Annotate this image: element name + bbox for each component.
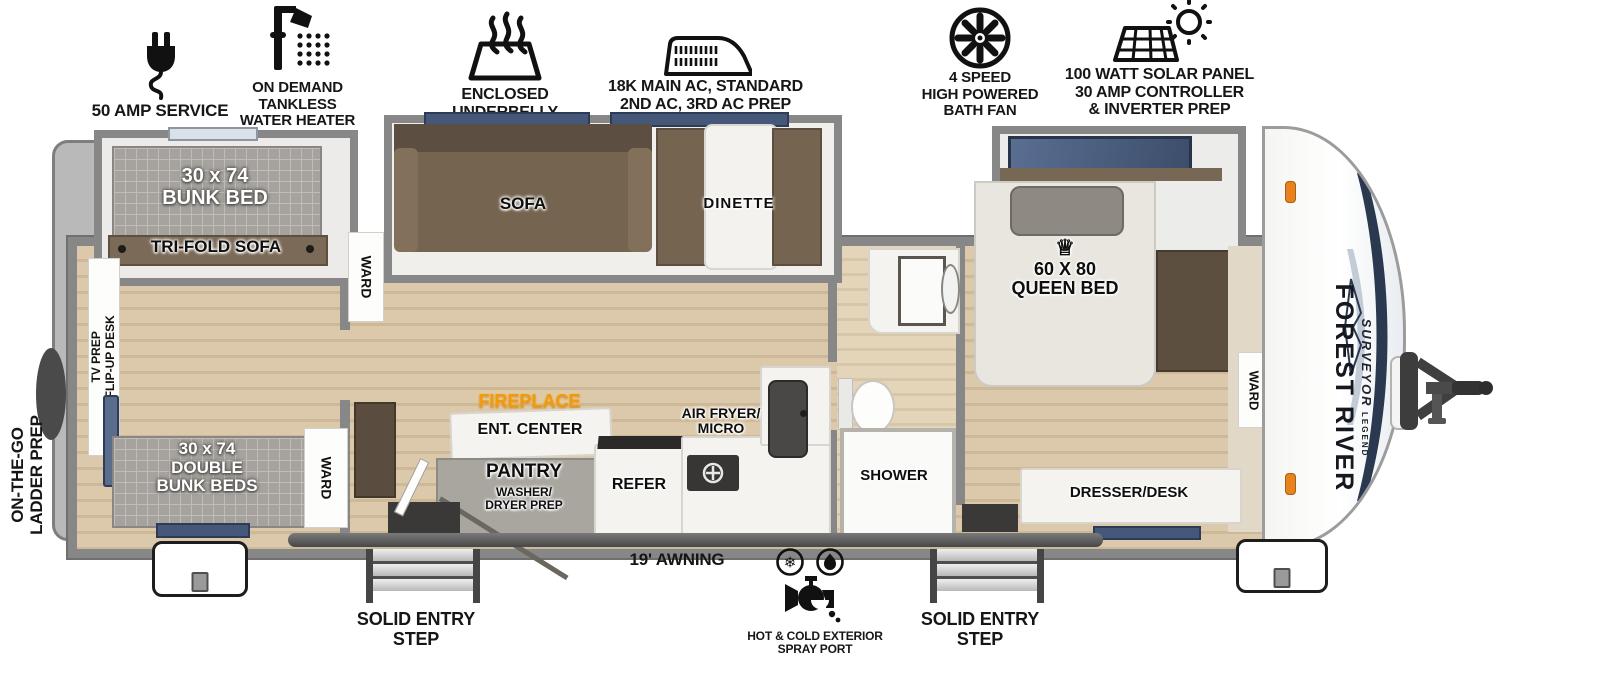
bunkroom-bottom-window bbox=[156, 523, 250, 538]
sofa-armrest-left bbox=[394, 148, 418, 252]
tri-fold-sofa-label: TRI-FOLD SOFA bbox=[133, 238, 299, 256]
step-rung bbox=[373, 579, 473, 591]
feature-water-heater-label: ON DEMAND TANKLESS WATER HEATER bbox=[230, 80, 365, 130]
feature-bath-fan: 4 SPEED HIGH POWERED BATH FAN bbox=[920, 6, 1040, 120]
feature-bath-fan-label: 4 SPEED HIGH POWERED BATH FAN bbox=[920, 70, 1040, 120]
ac-unit-icon bbox=[660, 34, 752, 78]
fan-icon bbox=[948, 6, 1012, 70]
crown-icon: ♕ bbox=[1035, 236, 1095, 259]
entry-step-left bbox=[366, 549, 480, 603]
awning-label: 19' AWNING bbox=[597, 551, 757, 570]
entry-mat-bedroom bbox=[962, 504, 1018, 532]
ladder-prep-label: ON-THE-GO LADDER PREP bbox=[9, 385, 55, 565]
stove bbox=[687, 455, 739, 491]
ent-center-label: ENT. CENTER bbox=[455, 422, 605, 439]
flame-icon bbox=[824, 554, 836, 571]
feature-solar: 100 WATT SOLAR PANEL 30 AMP CONTROLLER &… bbox=[1052, 0, 1267, 119]
marker-light-top bbox=[1285, 181, 1296, 203]
medicine-cabinet bbox=[898, 256, 946, 326]
sofa-armrest-right bbox=[628, 148, 652, 252]
forced-heat-icon bbox=[459, 10, 551, 86]
sofa-label: SOFA bbox=[458, 195, 588, 213]
step-rung bbox=[373, 549, 473, 564]
awning-bar bbox=[288, 533, 1103, 547]
ward-bunkroom-label: WARD bbox=[318, 457, 334, 500]
feature-solar-label: 100 WATT SOLAR PANEL 30 AMP CONTROLLER &… bbox=[1052, 66, 1267, 119]
burner-icon bbox=[701, 461, 725, 485]
ward-living-label: WARD bbox=[358, 256, 374, 299]
shower-stall bbox=[840, 428, 956, 540]
step-rung bbox=[373, 564, 473, 579]
bedroom-window bbox=[1008, 136, 1192, 172]
shower-icon bbox=[266, 4, 330, 80]
ward-bedroom-label: WARD bbox=[1247, 370, 1262, 410]
entry-step-left-label: SOLID ENTRY STEP bbox=[336, 610, 496, 650]
entry-step-right bbox=[930, 549, 1044, 603]
sofa-pivot-left bbox=[118, 245, 126, 253]
shower-label: SHOWER bbox=[848, 468, 940, 484]
branding-model-line: SURVEYOR LEGEND bbox=[1358, 258, 1374, 518]
refer-label: REFER bbox=[600, 477, 678, 494]
ward-living: WARD bbox=[348, 232, 384, 322]
ward-bunkroom: WARD bbox=[304, 428, 348, 528]
sofa-pivot-right bbox=[306, 245, 314, 253]
headboard-shelf bbox=[1000, 168, 1222, 181]
air-fryer-label: AIR FRYER/ MICRO bbox=[664, 406, 778, 435]
bunk-bed-label: 30 x 74 BUNK BED bbox=[122, 165, 308, 209]
pantry-label: PANTRY bbox=[448, 462, 600, 482]
rv-floorplan-diagram: 50 AMP SERVICE ON DEMAND TANKLESS WATER … bbox=[0, 0, 1600, 679]
bed-pillow bbox=[1010, 186, 1124, 236]
step-rung bbox=[937, 549, 1037, 564]
tv-prep-label: TV PREP FLIP-UP DESK bbox=[90, 315, 118, 398]
spray-port-label: HOT & COLD EXTERIOR SPRAY PORT bbox=[740, 630, 890, 656]
queen-bed-label: 60 X 80 QUEEN BED bbox=[995, 260, 1135, 298]
bunkroom-slide-window bbox=[168, 127, 258, 141]
brand-make: FOREST RIVER bbox=[1331, 258, 1356, 518]
bedroom-bottom-window bbox=[1093, 526, 1201, 540]
feature-ac: 18K MAIN AC, STANDARD 2ND AC, 3RD AC PRE… bbox=[608, 34, 803, 113]
storage-latch bbox=[1274, 568, 1291, 588]
hitch bbox=[1398, 336, 1494, 446]
front-cap-branding: SURVEYOR LEGEND FOREST RIVER bbox=[1310, 258, 1374, 518]
double-bunk-label: 30 x 74 DOUBLE BUNK BEDS bbox=[120, 440, 294, 496]
refrigerator-top bbox=[597, 436, 682, 449]
storage-door-left bbox=[152, 541, 248, 597]
spray-port-icon: ❄ bbox=[772, 548, 850, 626]
marker-light-bottom bbox=[1285, 473, 1296, 495]
snowflake-icon: ❄ bbox=[784, 555, 797, 572]
brand-trim: LEGEND bbox=[1360, 412, 1369, 457]
step-rung bbox=[937, 579, 1037, 591]
storage-latch bbox=[192, 572, 209, 592]
power-plug-icon bbox=[130, 30, 190, 102]
solar-panel-icon bbox=[1105, 0, 1215, 66]
pantry-prep-label: WASHER/ DRYER PREP bbox=[448, 486, 600, 511]
feature-water-heater: ON DEMAND TANKLESS WATER HEATER bbox=[230, 4, 365, 130]
tv-panel-living bbox=[354, 402, 396, 498]
bath-mirror bbox=[941, 264, 960, 314]
entry-step-right-label: SOLID ENTRY STEP bbox=[900, 610, 1060, 650]
brand-model: SURVEYOR bbox=[1359, 319, 1374, 408]
step-rung bbox=[937, 564, 1037, 579]
sink-faucet bbox=[800, 410, 807, 417]
dinette-label: DINETTE bbox=[674, 196, 804, 212]
dresser-desk-label: DRESSER/DESK bbox=[1040, 485, 1218, 501]
storage-door-right bbox=[1236, 539, 1328, 593]
toilet-bowl bbox=[851, 380, 895, 434]
feature-ac-label: 18K MAIN AC, STANDARD 2ND AC, 3RD AC PRE… bbox=[608, 78, 803, 113]
